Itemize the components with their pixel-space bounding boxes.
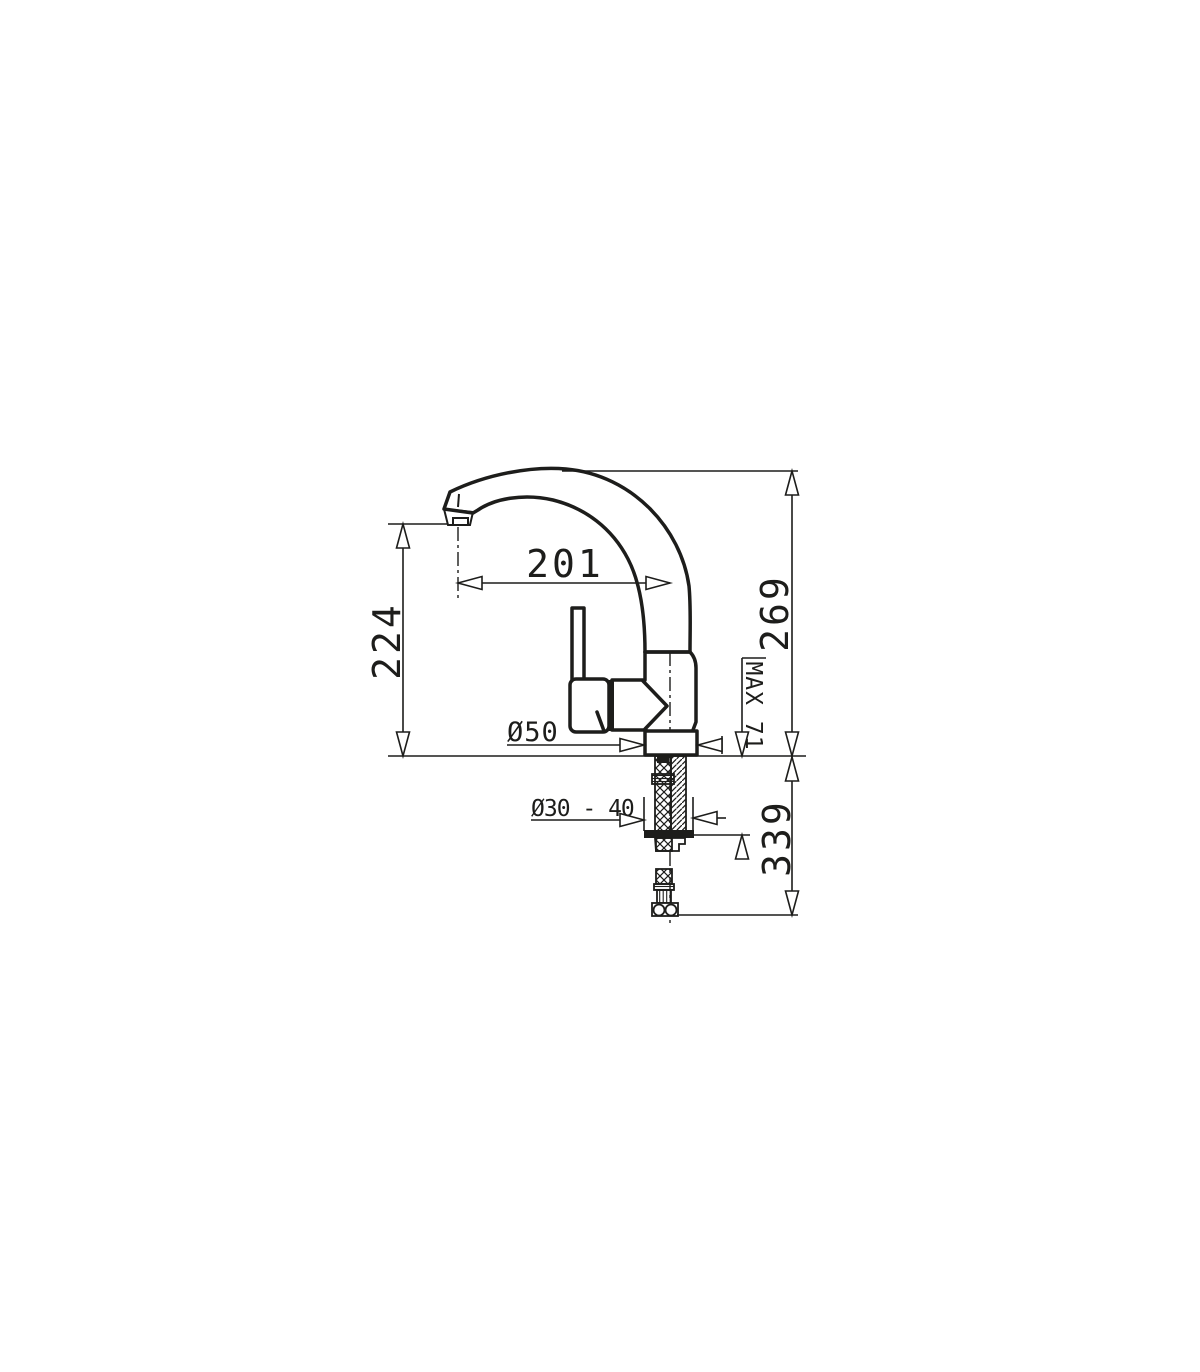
arrow-224-down [397, 732, 410, 756]
arrow-224-up [397, 524, 410, 548]
hose-end-nut-left-circle [654, 905, 665, 916]
faucet-base [645, 731, 697, 755]
label-spout-reach: 201 [526, 542, 604, 586]
label-overall-height: 269 [753, 574, 797, 652]
arrow-base-dia-right [698, 739, 722, 752]
spout-tip-joint-line [458, 494, 459, 507]
label-hole-diameter: Ø30 - 40 [531, 796, 634, 822]
hose-lower-collar [654, 884, 674, 890]
under-counter-assembly [644, 756, 694, 916]
faucet-outline [444, 468, 697, 755]
arrow-339-down [786, 891, 799, 915]
arrow-339-up [786, 757, 799, 781]
hose-lower-braid [656, 869, 672, 884]
hose-cap [657, 756, 669, 763]
technical-drawing-page: 201 224 269 339 MAX 71 Ø50 Ø30 - 40 [0, 0, 1200, 1372]
faucet-dimension-drawing: 201 224 269 339 MAX 71 Ø50 Ø30 - 40 [0, 0, 1200, 1372]
arrow-269-up [786, 471, 799, 495]
arrow-flange-up [736, 835, 749, 859]
label-under-counter-depth: 339 [755, 799, 799, 877]
label-max-deck-thickness: MAX 71 [740, 661, 766, 750]
handle-lever [572, 608, 584, 680]
supply-hose-upper [655, 756, 671, 832]
mounting-nut-braid [656, 838, 672, 851]
arrow-201-left [458, 577, 482, 590]
hose-lower-barrel [657, 890, 671, 903]
label-spout-height: 224 [365, 602, 409, 680]
riser-right-edge [690, 652, 696, 730]
arrow-hole-dia-right [693, 812, 717, 825]
arrow-269-down [786, 732, 799, 756]
threaded-shank [671, 756, 686, 832]
hose-end-nut-right-circle [666, 905, 677, 916]
mounting-flange [644, 830, 694, 838]
aerator [453, 518, 468, 525]
arrow-base-dia-left [620, 739, 644, 752]
hose-collar [652, 774, 674, 784]
neck-chevron [643, 681, 667, 729]
label-base-diameter: Ø50 [507, 717, 559, 748]
